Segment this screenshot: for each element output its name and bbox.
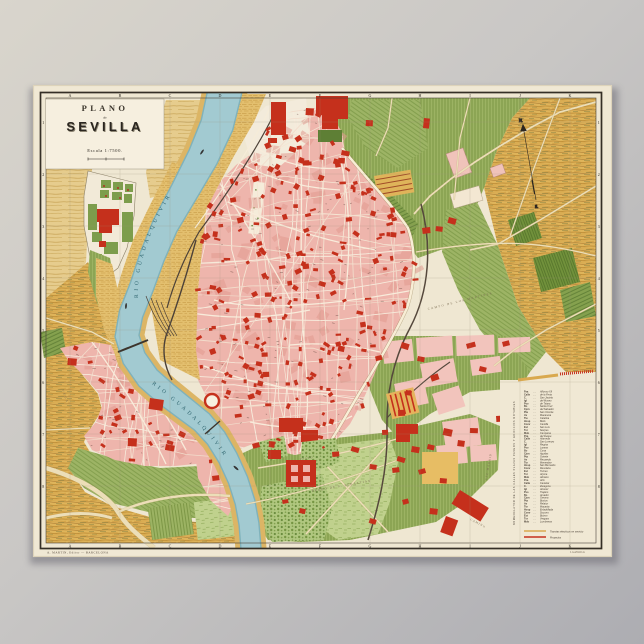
svg-text:2: 2 (42, 172, 44, 177)
svg-text:.....: ..... (533, 480, 536, 482)
svg-text:.....: ..... (533, 412, 536, 414)
svg-text:.....: ..... (533, 392, 536, 394)
svg-text:C: C (169, 544, 172, 549)
svg-text:A: A (69, 93, 72, 98)
svg-text:.....: ..... (533, 442, 536, 444)
svg-text:.....: ..... (533, 409, 536, 411)
svg-text:Escala 1:7500.: Escala 1:7500. (87, 148, 122, 153)
svg-text:2: 2 (598, 172, 600, 177)
svg-text:Proyectos: Proyectos (550, 537, 562, 540)
svg-text:.....: ..... (533, 486, 536, 488)
svg-text:S.: S. (535, 204, 538, 209)
svg-text:1: 1 (598, 120, 600, 125)
svg-text:B: B (119, 93, 122, 98)
svg-text:8: 8 (598, 484, 600, 489)
svg-text:7: 7 (42, 432, 44, 437)
svg-text:Mdo: Mdo (524, 520, 530, 523)
svg-text:.....: ..... (533, 489, 536, 491)
svg-text:.....: ..... (533, 492, 536, 494)
svg-text:5: 5 (42, 328, 44, 333)
svg-text:.....: ..... (533, 436, 536, 438)
svg-text:.....: ..... (533, 451, 536, 453)
svg-text:.....: ..... (533, 468, 536, 470)
svg-text:.....: ..... (533, 427, 536, 429)
svg-text:D: D (219, 544, 222, 549)
svg-text:SEVILLA: SEVILLA (66, 119, 143, 134)
svg-text:PLANO: PLANO (82, 103, 129, 113)
svg-text:.....: ..... (533, 513, 536, 515)
svg-text:G: G (369, 544, 372, 549)
svg-text:.....: ..... (533, 421, 536, 423)
svg-text:6: 6 (42, 380, 44, 385)
svg-text:.....: ..... (533, 471, 536, 473)
svg-text:.....: ..... (533, 495, 536, 497)
svg-text:6: 6 (598, 380, 600, 385)
svg-text:.....: ..... (533, 439, 536, 441)
svg-text:.....: ..... (533, 397, 536, 399)
svg-text:.....: ..... (533, 510, 536, 512)
svg-text:K: K (569, 544, 572, 549)
svg-text:.....: ..... (533, 400, 536, 402)
svg-text:.....: ..... (533, 424, 536, 426)
svg-text:.....: ..... (533, 498, 536, 500)
svg-text:.....: ..... (533, 445, 536, 447)
svg-text:.....: ..... (533, 501, 536, 503)
svg-text:.....: ..... (533, 477, 536, 479)
svg-text:N.: N. (519, 118, 523, 123)
svg-text:.....: ..... (533, 433, 536, 435)
svg-text:.....: ..... (533, 453, 536, 455)
svg-text:.....: ..... (533, 507, 536, 509)
svg-text:.....: ..... (533, 403, 536, 405)
svg-text:.....: ..... (533, 430, 536, 432)
svg-text:D: D (219, 93, 222, 98)
svg-text:J. GASSO Lit.: J. GASSO Lit. (570, 551, 585, 554)
svg-text:.....: ..... (533, 465, 536, 467)
svg-text:.....: ..... (533, 521, 536, 523)
svg-text:.....: ..... (533, 415, 536, 417)
svg-text:.....: ..... (533, 462, 536, 464)
svg-text:.....: ..... (533, 518, 536, 520)
svg-text:.....: ..... (533, 418, 536, 420)
svg-text:.....: ..... (533, 448, 536, 450)
svg-text:C: C (169, 93, 172, 98)
svg-text:H: H (419, 544, 422, 549)
svg-text:7: 7 (598, 432, 600, 437)
svg-text:1: 1 (42, 120, 44, 125)
svg-text:NOMENCLATOR DE LAS CALLES PLAZ: NOMENCLATOR DE LAS CALLES PLAZAS PASEOS … (513, 401, 516, 525)
svg-text:H: H (419, 93, 422, 98)
svg-text:Lumbreras: Lumbreras (540, 520, 553, 523)
svg-text:K: K (569, 93, 572, 98)
svg-text:.....: ..... (533, 483, 536, 485)
svg-text:8: 8 (42, 484, 44, 489)
svg-text:5: 5 (598, 328, 600, 333)
svg-text:.....: ..... (533, 406, 536, 408)
svg-text:Tranvias electricos en servici: Tranvias electricos en servicio (550, 531, 584, 534)
svg-text:4: 4 (42, 276, 44, 281)
svg-text:.....: ..... (533, 474, 536, 476)
svg-text:G: G (369, 93, 372, 98)
svg-text:.....: ..... (533, 459, 536, 461)
svg-text:.....: ..... (533, 394, 536, 396)
svg-text:.....: ..... (533, 456, 536, 458)
svg-text:3: 3 (42, 224, 44, 229)
svg-text:4: 4 (598, 276, 600, 281)
svg-text:3: 3 (598, 224, 600, 229)
svg-text:.....: ..... (533, 504, 536, 506)
svg-text:.....: ..... (533, 515, 536, 517)
svg-text:A: A (69, 544, 72, 549)
svg-text:B: B (119, 544, 122, 549)
